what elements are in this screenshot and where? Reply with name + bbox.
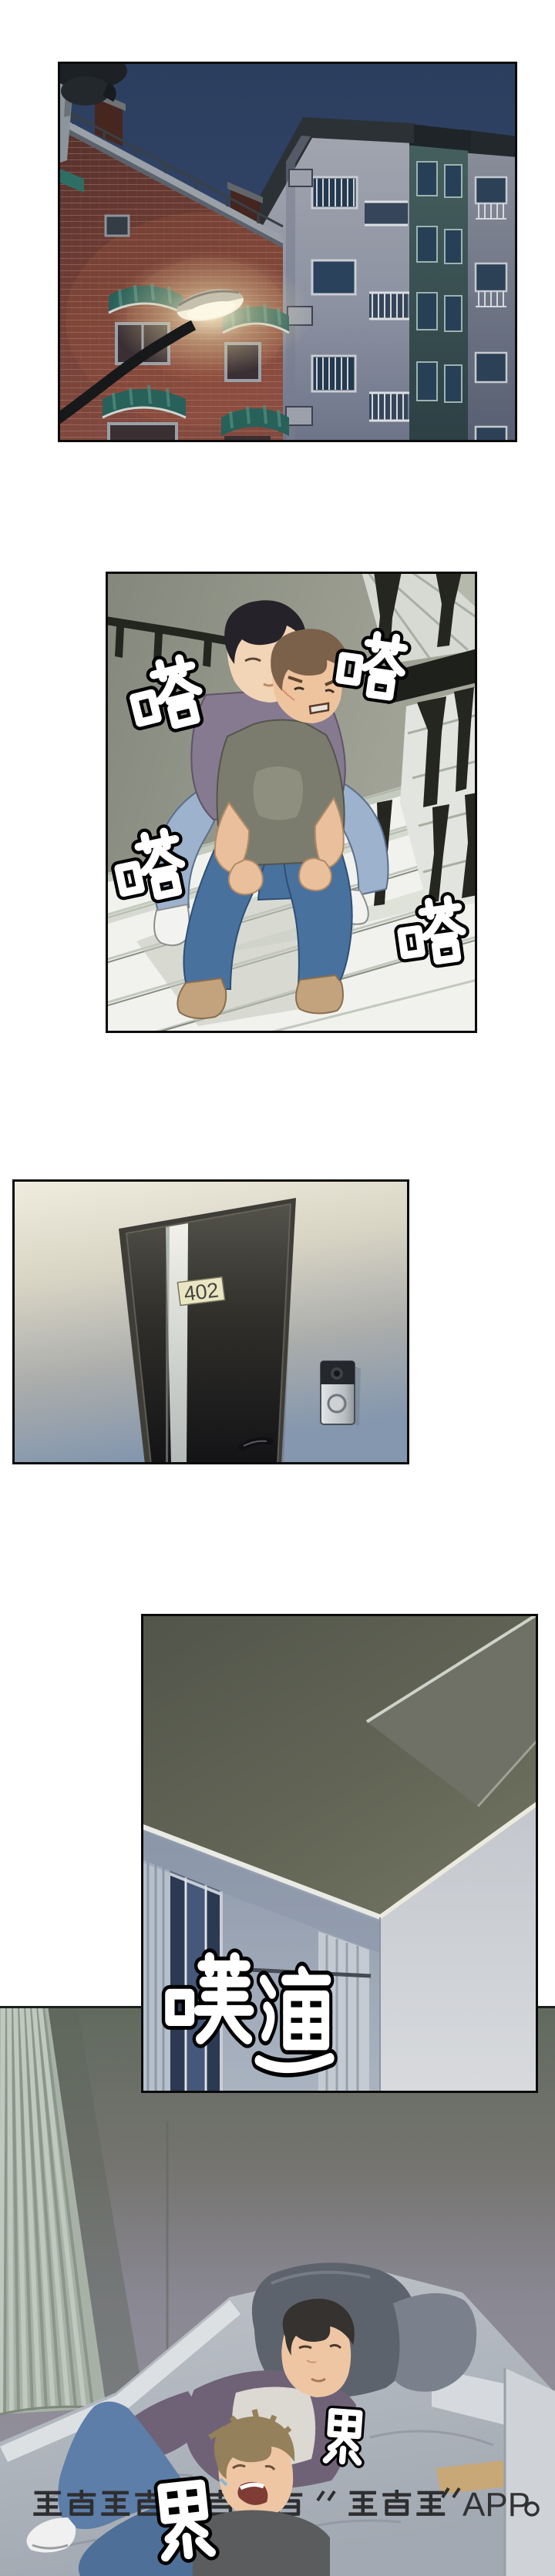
svg-text:APP: APP xyxy=(462,2486,530,2524)
svg-text:402: 402 xyxy=(183,1278,220,1305)
